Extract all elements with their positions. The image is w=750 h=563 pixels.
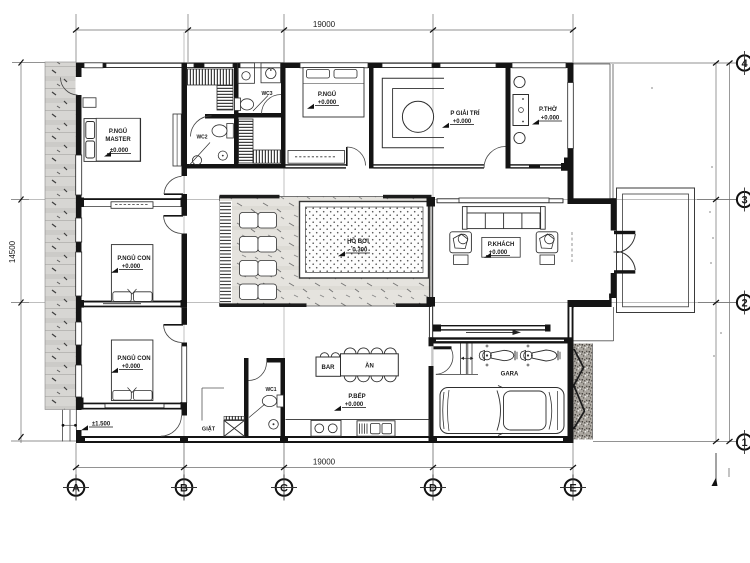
- svg-text:P.NGỦ CON: P.NGỦ CON: [117, 355, 150, 362]
- svg-text:BAR: BAR: [322, 365, 336, 371]
- svg-text:+0.000: +0.000: [489, 250, 508, 256]
- svg-text:WC3: WC3: [261, 91, 272, 97]
- svg-text:+0.000: +0.000: [345, 402, 364, 408]
- svg-text:4: 4: [741, 58, 748, 70]
- svg-text:19000: 19000: [313, 458, 336, 467]
- svg-text:+0.000: +0.000: [318, 100, 337, 106]
- svg-text:P.THỜ: P.THỜ: [539, 105, 558, 113]
- svg-text:±0.000: ±0.000: [110, 148, 129, 154]
- svg-text:P GIẢI TRÍ: P GIẢI TRÍ: [450, 109, 480, 117]
- svg-text:14500: 14500: [8, 240, 17, 263]
- svg-text:HỒ BƠI: HỒ BƠI: [347, 238, 369, 245]
- svg-text:GIẶT: GIẶT: [202, 426, 216, 433]
- svg-text:MASTER: MASTER: [105, 137, 131, 143]
- svg-text:ĂN: ĂN: [365, 363, 374, 370]
- svg-text:WC2: WC2: [196, 135, 207, 141]
- svg-text:C: C: [280, 483, 288, 495]
- svg-text:+0.000: +0.000: [122, 364, 141, 370]
- svg-text:E: E: [569, 483, 576, 495]
- svg-text:D: D: [429, 483, 437, 495]
- svg-text:3: 3: [741, 195, 747, 207]
- svg-text:P.KHÁCH: P.KHÁCH: [488, 241, 515, 248]
- svg-text:WC1: WC1: [265, 387, 276, 393]
- svg-text:P.NGỦ CON: P.NGỦ CON: [117, 255, 150, 262]
- svg-text:GARA: GARA: [501, 372, 519, 378]
- svg-text:+0.000: +0.000: [122, 264, 141, 270]
- svg-text:A: A: [72, 483, 80, 495]
- svg-text:P.NGỦ: P.NGỦ: [318, 91, 336, 98]
- svg-text:19000: 19000: [313, 20, 336, 29]
- svg-text:+0.000: +0.000: [453, 119, 472, 125]
- svg-text:P.BẾP: P.BẾP: [348, 393, 365, 400]
- svg-text:B: B: [180, 483, 188, 495]
- svg-text:1: 1: [741, 437, 747, 449]
- svg-text:P.NGỦ: P.NGỦ: [109, 128, 127, 135]
- svg-text:2: 2: [741, 298, 747, 310]
